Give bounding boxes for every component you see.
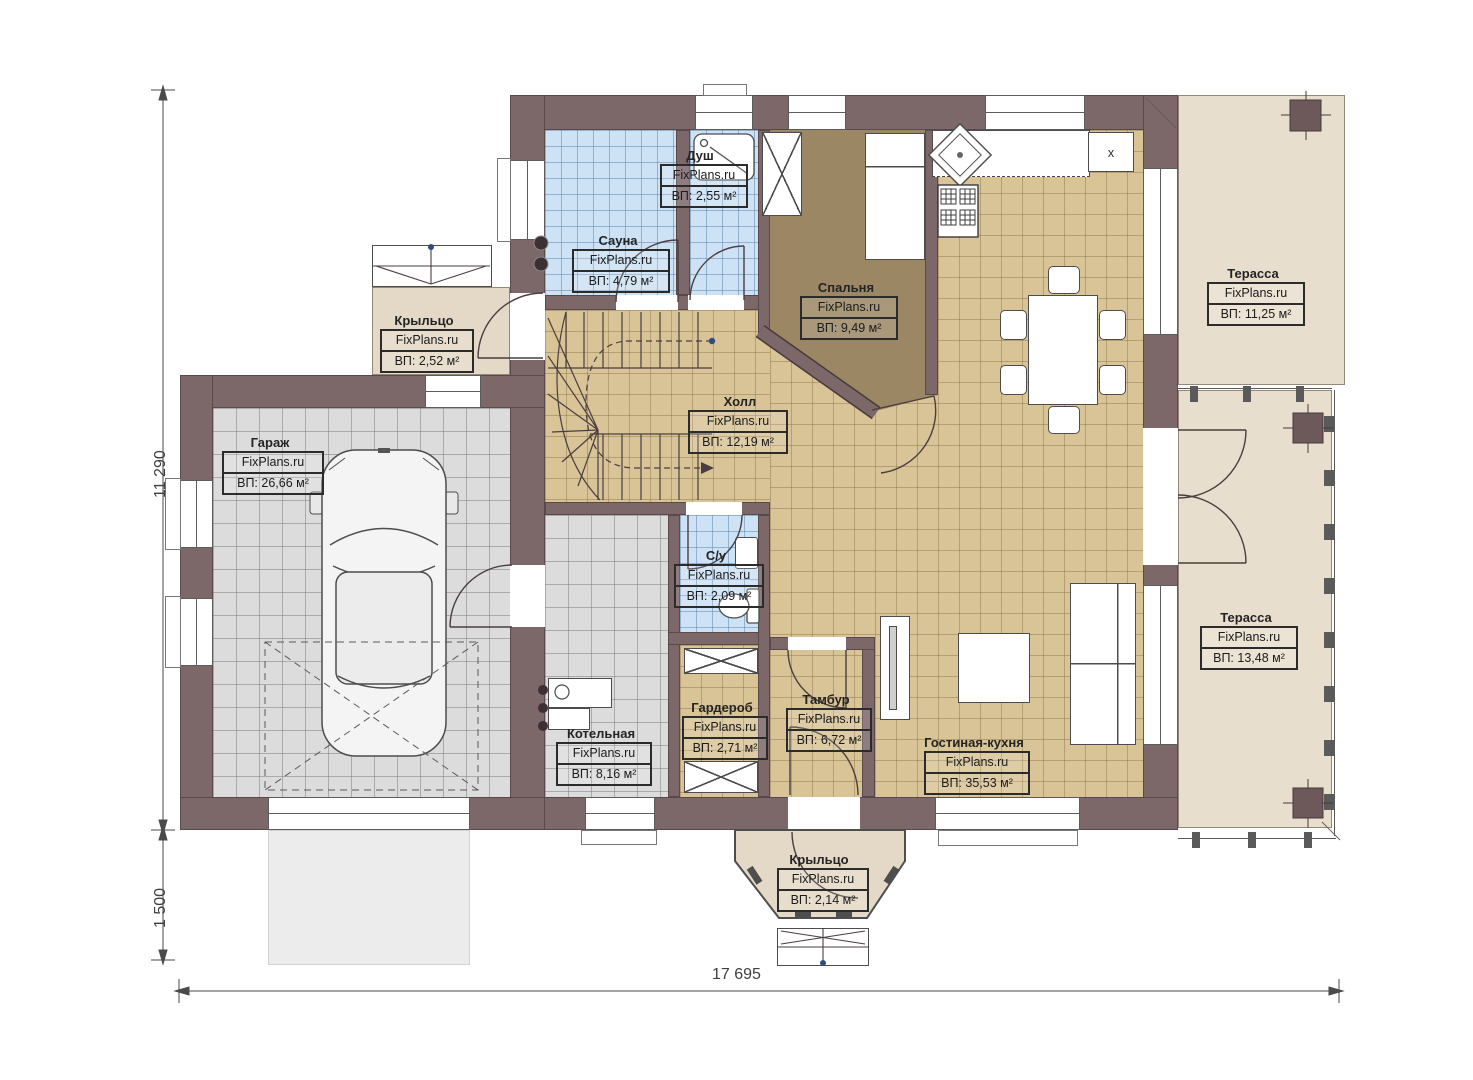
room-area: ВП: 2,14 м²	[779, 891, 867, 910]
room-label-wardrobe: FixPlans.ru ВП: 2,71 м²	[682, 716, 768, 760]
watermark: FixPlans.ru	[574, 251, 668, 272]
plan-linework	[0, 0, 1473, 1080]
boiler-details	[538, 685, 569, 731]
room-area: ВП: 35,53 м²	[926, 774, 1028, 793]
watermark: FixPlans.ru	[1209, 284, 1303, 305]
room-title-terrace-top: Терасса	[1227, 266, 1279, 281]
room-title-sauna: Сауна	[598, 233, 637, 248]
watermark: FixPlans.ru	[926, 753, 1028, 774]
room-area: ВП: 6,72 м²	[788, 731, 870, 750]
room-title-boiler: Котельная	[567, 726, 635, 741]
car-top-view	[310, 448, 458, 756]
watermark: FixPlans.ru	[558, 744, 650, 765]
room-title-garage: Гараж	[251, 435, 290, 450]
wall-bedroom-diagonal	[760, 331, 876, 413]
staircase	[548, 312, 715, 500]
watermark: FixPlans.ru	[788, 710, 870, 731]
floor-plan: x	[0, 0, 1473, 1080]
room-label-bathroom: FixPlans.ru ВП: 2,09 м²	[674, 564, 764, 608]
room-area: ВП: 4,79 м²	[574, 272, 668, 291]
room-area: ВП: 8,16 м²	[558, 765, 650, 784]
room-area: ВП: 12,19 м²	[690, 433, 786, 452]
room-title-hall: Холл	[724, 394, 757, 409]
room-title-terrace-right: Терасса	[1220, 610, 1272, 625]
watermark: FixPlans.ru	[662, 166, 746, 187]
room-title-wardrobe: Гардероб	[691, 700, 752, 715]
watermark: FixPlans.ru	[802, 298, 896, 319]
room-label-bedroom: FixPlans.ru ВП: 9,49 м²	[800, 296, 898, 340]
room-label-shower: FixPlans.ru ВП: 2,55 м²	[660, 164, 748, 208]
room-area: ВП: 26,66 м²	[224, 474, 322, 493]
watermark: FixPlans.ru	[1202, 628, 1296, 649]
terrace-columns	[1281, 91, 1333, 828]
watermark: FixPlans.ru	[684, 718, 766, 739]
room-area: ВП: 2,09 м²	[676, 587, 762, 606]
room-label-terrace-top: FixPlans.ru ВП: 11,25 м²	[1207, 282, 1305, 326]
room-label-terrace-right: FixPlans.ru ВП: 13,48 м²	[1200, 626, 1298, 670]
room-label-sauna: FixPlans.ru ВП: 4,79 м²	[572, 249, 670, 293]
room-area: ВП: 2,71 м²	[684, 739, 766, 758]
room-label-porch-bottom: FixPlans.ru ВП: 2,14 м²	[777, 868, 869, 912]
room-title-bathroom: С/у	[706, 548, 726, 563]
dim-height-porch: 1 500	[152, 888, 170, 928]
room-title-porch-top: Крыльцо	[394, 313, 453, 328]
roof-corner-lines	[1146, 98, 1340, 840]
watermark: FixPlans.ru	[779, 870, 867, 891]
room-label-living-kitchen: FixPlans.ru ВП: 35,53 м²	[924, 751, 1030, 795]
room-label-boiler: FixPlans.ru ВП: 8,16 м²	[556, 742, 652, 786]
room-area: ВП: 2,52 м²	[382, 352, 472, 371]
kitchen-sink	[929, 124, 991, 186]
watermark: FixPlans.ru	[224, 453, 322, 474]
room-title-living-kitchen: Гостиная-кухня	[924, 735, 1024, 750]
sauna-stove	[534, 236, 548, 271]
room-label-hall: FixPlans.ru ВП: 12,19 м²	[688, 410, 788, 454]
watermark: FixPlans.ru	[690, 412, 786, 433]
room-area: ВП: 11,25 м²	[1209, 305, 1303, 324]
room-title-vestibule: Тамбур	[802, 692, 849, 707]
watermark: FixPlans.ru	[676, 566, 762, 587]
room-area: ВП: 13,48 м²	[1202, 649, 1296, 668]
room-area: ВП: 2,55 м²	[662, 187, 746, 206]
room-label-garage: FixPlans.ru ВП: 26,66 м²	[222, 451, 324, 495]
stove	[938, 185, 978, 237]
room-label-porch-top: FixPlans.ru ВП: 2,52 м²	[380, 329, 474, 373]
room-title-porch-bottom: Крыльцо	[789, 852, 848, 867]
room-label-vestibule: FixPlans.ru ВП: 6,72 м²	[786, 708, 872, 752]
room-area: ВП: 9,49 м²	[802, 319, 896, 338]
room-title-bedroom: Спальня	[818, 280, 874, 295]
room-title-shower: Душ	[686, 148, 714, 163]
dim-height-main: 11 290	[152, 450, 170, 498]
watermark: FixPlans.ru	[382, 331, 472, 352]
dim-width-total: 17 695	[712, 966, 761, 984]
